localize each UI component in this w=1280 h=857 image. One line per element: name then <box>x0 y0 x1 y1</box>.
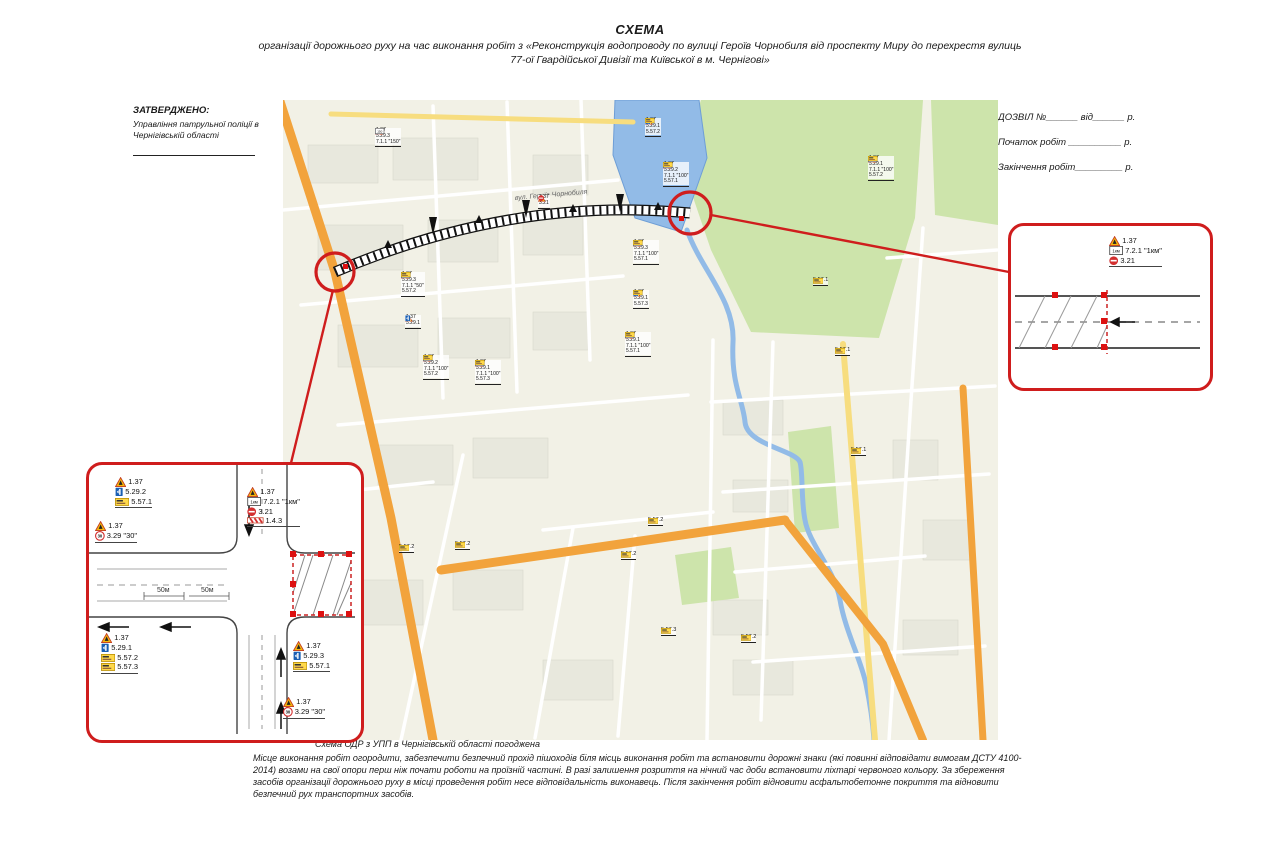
no-entry-icon <box>1109 256 1118 265</box>
sign-row: 5.29.2 <box>115 487 152 497</box>
detour-plate-icon <box>455 542 465 548</box>
sign-row: 1.37 <box>95 521 137 531</box>
sign-row: 5.57.2 <box>868 173 894 179</box>
sign-row: 5.57.2 <box>423 372 449 378</box>
sign-row: 1.4.3 <box>247 516 300 525</box>
detour-plate-icon <box>423 355 433 360</box>
sign-code-label: 5.57.2 <box>402 289 416 295</box>
sign-code-label: 3.21 <box>258 507 273 516</box>
sign-code-label: 7.1.1 "150" <box>376 140 400 146</box>
svg-text:150: 150 <box>377 129 382 133</box>
permit-number-line: ДОЗВІЛ №______ від______ р. <box>998 112 1183 123</box>
sign-row: 1.37 <box>101 633 138 643</box>
sign-group: 1.375.29.15.57.3 <box>633 290 649 309</box>
intersection-detail-inset: 50м 50м 1.375.29.25.57.11.37303.29 "30"1… <box>86 462 364 743</box>
detour-plate-icon <box>101 654 115 662</box>
sign-group: 1.37303.29 "30" <box>283 697 325 719</box>
sign-code-label: 1.37 <box>296 697 311 706</box>
svg-text:1км: 1км <box>1112 249 1120 254</box>
permit-block: ДОЗВІЛ №______ від______ р. Початок робі… <box>998 112 1183 187</box>
sign-code-label: 1.37 <box>306 641 321 650</box>
sign-row: 5.57.2 <box>645 130 661 136</box>
mandatory-direction-icon <box>101 643 109 653</box>
work-start-line: Початок робіт __________ р. <box>998 137 1183 148</box>
approved-organization: Управління патрульної поліції в Чернігів… <box>133 119 265 141</box>
sign-code-label: 5.57.1 <box>309 661 330 670</box>
sign-row: 1507.1.1 "150" <box>375 140 401 146</box>
detour-plate-marker: 5.57.2 <box>741 635 756 643</box>
sign-row: 303.29 "30" <box>283 707 325 717</box>
distance-plate-icon: 150 <box>375 128 385 134</box>
road-detail-inset: 1.371км7.2.1 "1км"3.21 <box>1008 223 1213 391</box>
road-segment-diagram <box>1011 226 1204 382</box>
sign-row: 5.29.1 <box>101 643 138 653</box>
sign-code-label: 5.29.3 <box>303 651 324 660</box>
detour-plate-marker: 5.57.1 <box>813 278 828 286</box>
sign-group: 1.375.29.31007.1.1 "100"5.57.1 <box>633 240 659 265</box>
detour-plate-icon <box>633 290 643 295</box>
detour-plate-icon <box>851 448 861 454</box>
detour-plate-icon <box>661 628 671 634</box>
detour-plate-marker: 5.57.2 <box>399 545 414 553</box>
sign-code-label: 3.21 <box>1120 256 1135 265</box>
dimension-label: 50м <box>201 587 214 594</box>
detour-plate-icon <box>633 240 643 245</box>
sign-code-label: 3.29 "30" <box>107 531 137 540</box>
sign-row: 5.57.1 <box>633 257 659 263</box>
sign-row: 1.37 <box>283 697 325 707</box>
detour-plate-marker: 5.57.1 <box>851 448 866 456</box>
mandatory-direction-icon <box>115 487 123 497</box>
sign-code-label: 5.57.2 <box>869 173 883 179</box>
sign-code-label: 5.57.2 <box>646 130 660 136</box>
sign-code-label: 1.4.3 <box>266 516 283 525</box>
title-block: СХЕМА організації дорожнього руху на час… <box>0 22 1280 68</box>
hazard-stripe-icon <box>247 517 264 524</box>
barrier-square <box>343 264 348 269</box>
approved-heading: ЗАТВЕРДЖЕНО: <box>133 105 265 116</box>
sign-group: 1.375.29.31507.1.1 "150" <box>375 128 401 147</box>
sign-code-label: 3.29 "30" <box>295 707 325 716</box>
sign-group: 1.375.29.25.57.1 <box>115 477 152 508</box>
sign-row: 5.57.1 <box>293 661 330 670</box>
sign-row: 5.57.2 <box>401 289 425 295</box>
page-title: СХЕМА <box>0 22 1280 37</box>
detour-plate-icon <box>399 545 409 551</box>
sign-row: 303.29 "30" <box>95 531 137 541</box>
detour-plate-icon <box>741 635 751 641</box>
svg-text:30: 30 <box>286 710 291 715</box>
sign-row: 1.37 <box>293 641 330 651</box>
sign-code-label: 5.57.1 <box>626 349 640 355</box>
roadworks-warning-icon <box>115 477 126 487</box>
sign-code-label: 5.29.1 <box>111 643 132 652</box>
approved-block: ЗАТВЕРДЖЕНО: Управління патрульної поліц… <box>133 105 265 156</box>
sign-row: 5.57.3 <box>101 662 138 671</box>
scheme-document: СХЕМА організації дорожнього руху на час… <box>0 0 1280 857</box>
sign-group: 1.37303.29 "30" <box>95 521 137 543</box>
detour-plate-icon <box>101 663 115 671</box>
sign-row: 5.57.1 <box>625 349 651 355</box>
sign-group: 1.371км7.2.1 "1км"3.211.4.3 <box>247 487 300 527</box>
detour-plate-icon <box>293 662 307 670</box>
detour-plate-marker: 5.57.3 <box>661 628 676 636</box>
sign-row: 5.57.3 <box>633 302 649 308</box>
barrier-square <box>679 216 684 221</box>
sign-row: 5.57.3 <box>475 377 501 383</box>
sign-row: 5.57.1 <box>115 497 152 506</box>
sign-row: 1км7.2.1 "1км" <box>1109 246 1162 255</box>
sign-code-label: 1.37 <box>260 487 275 496</box>
svg-text:30: 30 <box>98 534 103 539</box>
signature-line <box>133 155 255 156</box>
sign-code-label: 1.37 <box>114 633 129 642</box>
roadworks-warning-icon <box>1109 236 1120 246</box>
mandatory-direction-icon <box>293 651 301 661</box>
sign-code-label: 7.2.1 "1км" <box>263 497 300 506</box>
detour-plate-marker: 5.57.2 <box>455 542 470 550</box>
sign-row: 1.37 <box>1109 236 1162 246</box>
sign-group: 1.371км7.2.1 "1км"3.21 <box>1109 236 1162 267</box>
sign-code-label: 5.29.2 <box>125 487 146 496</box>
detour-plate-icon <box>835 348 845 354</box>
sign-group: 1.375.29.35.57.1 <box>293 641 330 672</box>
sign-group: 1.375.29.15.57.25.57.3 <box>101 633 138 674</box>
sign-code-label: 5.57.2 <box>117 653 138 662</box>
detour-plate-icon <box>813 278 823 284</box>
sign-group: 1.375.29.1 <box>405 315 421 329</box>
sign-code-label: 5.57.3 <box>476 377 490 383</box>
roadworks-warning-icon <box>283 697 294 707</box>
sign-code-label: 1.37 <box>128 477 143 486</box>
sign-code-label: 1.37 <box>108 521 123 530</box>
detour-plate-icon <box>645 118 655 123</box>
sign-code-label: 1.37 <box>1122 236 1137 245</box>
work-end-line: Закінчення робіт_________ р. <box>998 162 1183 173</box>
detour-plate-icon <box>401 272 411 277</box>
detour-plate-marker: 5.57.2 <box>648 518 663 526</box>
roadworks-warning-icon <box>101 633 112 643</box>
distance-plate-icon: 1км <box>247 497 261 506</box>
roadworks-warning-icon <box>95 521 106 531</box>
sign-group: 1.375.29.3507.1.1 "50"5.57.2 <box>401 272 425 297</box>
sign-group: 1.375.29.11007.1.1 "100"5.57.3 <box>475 360 501 385</box>
detour-plate-icon <box>475 360 485 365</box>
speed-limit-icon: 30 <box>283 707 293 717</box>
sign-group: 1.375.29.15.57.2 <box>645 118 661 137</box>
sign-code-label: 5.57.3 <box>117 662 138 671</box>
page-subtitle: організації дорожнього руху на час викон… <box>253 40 1028 68</box>
sign-code-label: 5.57.1 <box>634 257 648 263</box>
detour-plate-marker: 5.57.1 <box>835 348 850 356</box>
sign-row: 5.29.3 <box>293 651 330 661</box>
roadworks-warning-icon <box>293 641 304 651</box>
detour-plate-icon <box>115 498 129 506</box>
sign-code-label: 5.57.2 <box>424 372 438 378</box>
sign-row: 1км7.2.1 "1км" <box>247 497 300 506</box>
speed-limit-icon: 30 <box>95 531 105 541</box>
map-base: вул. Героїв Чорнобиля <box>283 100 998 740</box>
roadworks-warning-icon <box>247 487 258 497</box>
no-entry-icon <box>538 195 544 201</box>
no-entry-icon <box>247 507 256 516</box>
sign-code-label: 5.57.1 <box>664 179 678 185</box>
sign-group: 1.375.29.11007.1.1 "100"5.57.2 <box>868 156 894 181</box>
sign-row: 3.21 <box>1109 256 1162 265</box>
detour-plate-icon <box>648 518 658 524</box>
sign-code-label: 5.57.1 <box>131 497 152 506</box>
svg-text:1км: 1км <box>250 500 258 505</box>
sign-code-label: 7.2.1 "1км" <box>1125 246 1162 255</box>
city-map: вул. Героїв Чорнобиля 1.375.29.31507.1.1… <box>283 100 998 740</box>
detour-plate-icon <box>625 332 635 337</box>
sign-code-label: 5.57.3 <box>634 302 648 308</box>
sign-row: 5.57.2 <box>101 653 138 662</box>
mandatory-direction-icon <box>405 315 411 322</box>
distance-plate-icon: 1км <box>1109 246 1123 255</box>
sign-group: 1.373.21 <box>538 195 550 209</box>
sign-row: 1.37 <box>247 487 300 497</box>
sign-row: 3.21 <box>247 507 300 516</box>
sign-group: 1.375.29.21007.1.1 "100"5.57.1 <box>663 162 689 187</box>
work-zone-hatched <box>290 551 352 617</box>
footer-note-paragraph: Місце виконання робіт огородити, забезпе… <box>253 753 1037 801</box>
dimension-label: 50м <box>157 587 170 594</box>
sign-group: 1.375.29.11007.1.1 "100"5.57.1 <box>625 332 651 357</box>
sign-row: 1.37 <box>115 477 152 487</box>
detour-plate-icon <box>868 156 878 161</box>
detour-plate-icon <box>621 552 631 558</box>
detour-plate-icon <box>663 162 673 167</box>
sign-group: 1.375.29.21007.1.1 "100"5.57.2 <box>423 355 449 380</box>
sign-row: 5.57.1 <box>663 179 689 185</box>
detour-plate-marker: 5.57.2 <box>621 552 636 560</box>
